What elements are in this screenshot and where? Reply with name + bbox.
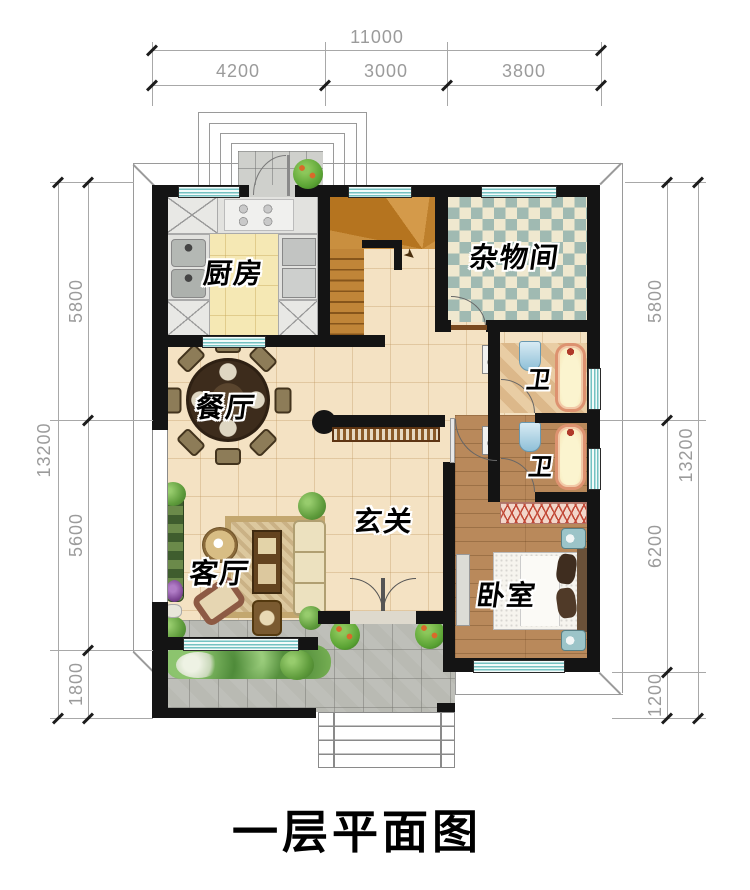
dim-left-seg-3: 1800 <box>66 644 86 724</box>
storage-window-top <box>481 186 557 198</box>
dim-left-seg-2: 5600 <box>66 495 86 575</box>
wall-right <box>587 185 600 672</box>
living-sofa <box>293 520 326 616</box>
room-label-living: 客厅 <box>187 552 253 592</box>
hedge-white-flowers <box>176 652 220 678</box>
kitchen-window-top <box>178 186 240 198</box>
partition-console <box>332 427 440 442</box>
wall-foyer-bottom-right <box>416 611 455 624</box>
bath-upper-window-right <box>588 368 601 410</box>
back-porch-bush <box>293 159 323 189</box>
dim-top-seg-1: 4200 <box>198 61 278 81</box>
wall-partition-dining <box>325 415 445 427</box>
dim-top-seg-3: 3800 <box>484 61 564 81</box>
entry-bush-left <box>330 620 360 650</box>
wall-left-lower <box>152 602 168 718</box>
kitchen-cabinet-right-bottom <box>278 300 318 337</box>
hedge-fern <box>280 650 314 680</box>
porch-right-edge-bottom <box>455 694 623 695</box>
dim-line-left-segments <box>88 182 89 718</box>
dim-ext-left <box>50 420 153 421</box>
wall-storage-bottom-right <box>486 320 600 332</box>
living-pouf <box>252 600 282 636</box>
purple-flowers <box>166 580 183 602</box>
wall-foyer-bottom-left <box>318 611 350 624</box>
kitchen-appliance-1 <box>282 238 316 266</box>
bath-lower-window-right <box>588 448 601 490</box>
dim-left-seg-1: 5800 <box>66 261 86 341</box>
kitchen-sink-2 <box>171 269 206 298</box>
front-steps-stringer-right <box>440 712 442 768</box>
plan-title: 一层平面图 <box>232 796 482 862</box>
room-label-storage: 杂物间 <box>467 236 563 276</box>
wall-terrace-bottom <box>152 708 316 718</box>
wall-bath-bottom-right <box>535 492 587 502</box>
wall-kitchen-right <box>318 190 330 347</box>
wall-left-upper <box>152 185 168 430</box>
dim-line-right-total <box>698 182 699 718</box>
front-steps-stringer-left <box>333 712 335 768</box>
room-label-bedroom: 卧室 <box>474 574 540 614</box>
dim-line-right-segments <box>667 182 668 718</box>
wall-kitchen-bottom <box>152 335 385 347</box>
dim-ext-top <box>447 42 448 106</box>
dim-line-top-segments <box>152 85 602 86</box>
bedroom-dresser <box>456 554 470 626</box>
wardrobe-hatch <box>500 502 587 524</box>
left-window-band <box>152 430 168 602</box>
living-window-bottom <box>183 638 299 651</box>
room-label-dining: 餐厅 <box>193 386 259 426</box>
room-label-foyer: 玄关 <box>351 500 417 540</box>
bathtub-lower <box>555 424 586 490</box>
wall-storage-bottom-left <box>435 320 451 332</box>
nightstand-lower <box>561 630 586 651</box>
front-steps <box>318 712 455 768</box>
nightstand-upper <box>561 528 586 549</box>
room-label-bath-upper: 卫 <box>525 360 556 395</box>
bed-headboard <box>577 548 587 632</box>
dim-ext-left <box>50 182 134 183</box>
room-label-bath-lower: 卫 <box>527 447 558 482</box>
entry-door-leaves <box>381 578 385 611</box>
kitchen-cooktop <box>224 199 294 231</box>
dim-right-total: 13200 <box>676 415 696 495</box>
dim-ext-top <box>325 42 326 106</box>
back-door-leaf <box>287 155 290 196</box>
floor-plan-canvas: ➤ <box>0 0 750 890</box>
wall-storage-left <box>435 190 448 332</box>
eave-corner-tr <box>600 163 622 185</box>
wall-bath-mid-right <box>535 413 587 423</box>
dim-right-seg-1: 5800 <box>645 261 665 341</box>
dim-top-total: 11000 <box>337 27 417 47</box>
eave-line-right <box>622 163 623 693</box>
dim-right-seg-2: 6200 <box>645 506 665 586</box>
eave-corner-br <box>599 672 621 694</box>
living-cabinet <box>252 530 282 594</box>
dim-right-seg-3: 1200 <box>645 655 665 735</box>
kitchen-appliance-2 <box>282 268 316 298</box>
kitchen-cabinet-left-bottom <box>166 300 210 337</box>
bedroom-window-bottom <box>473 660 565 673</box>
room-label-kitchen: 厨房 <box>201 252 267 292</box>
staircase-treads <box>330 249 364 337</box>
eave-corner-tl <box>133 164 155 186</box>
bedroom-door-leaf <box>450 418 455 463</box>
dim-left-total: 13200 <box>34 410 54 490</box>
eave-line-left <box>133 163 134 652</box>
dim-line-top-total <box>152 50 602 51</box>
kitchen-corner-cabinet <box>166 196 218 234</box>
cabinet-shelf-item <box>258 564 276 584</box>
kitchen-sink-1 <box>171 239 206 267</box>
living-plant-upper <box>298 492 326 520</box>
kitchen-window-bottom <box>202 336 266 348</box>
stairhall-window-top <box>348 186 412 198</box>
bathtub-upper <box>555 343 586 412</box>
wall-bedroom-left <box>443 462 455 672</box>
cabinet-shelf-item <box>258 538 276 554</box>
dim-line-left-total <box>58 182 59 718</box>
entry-door-threshold <box>350 611 416 624</box>
dim-top-seg-2: 3000 <box>346 61 426 81</box>
porch-right-edge-left <box>455 672 456 695</box>
storage-door-leaf <box>451 325 487 330</box>
wall-bath-bottom-left <box>488 492 500 502</box>
dining-chair <box>275 388 292 414</box>
dining-chair <box>215 448 241 465</box>
